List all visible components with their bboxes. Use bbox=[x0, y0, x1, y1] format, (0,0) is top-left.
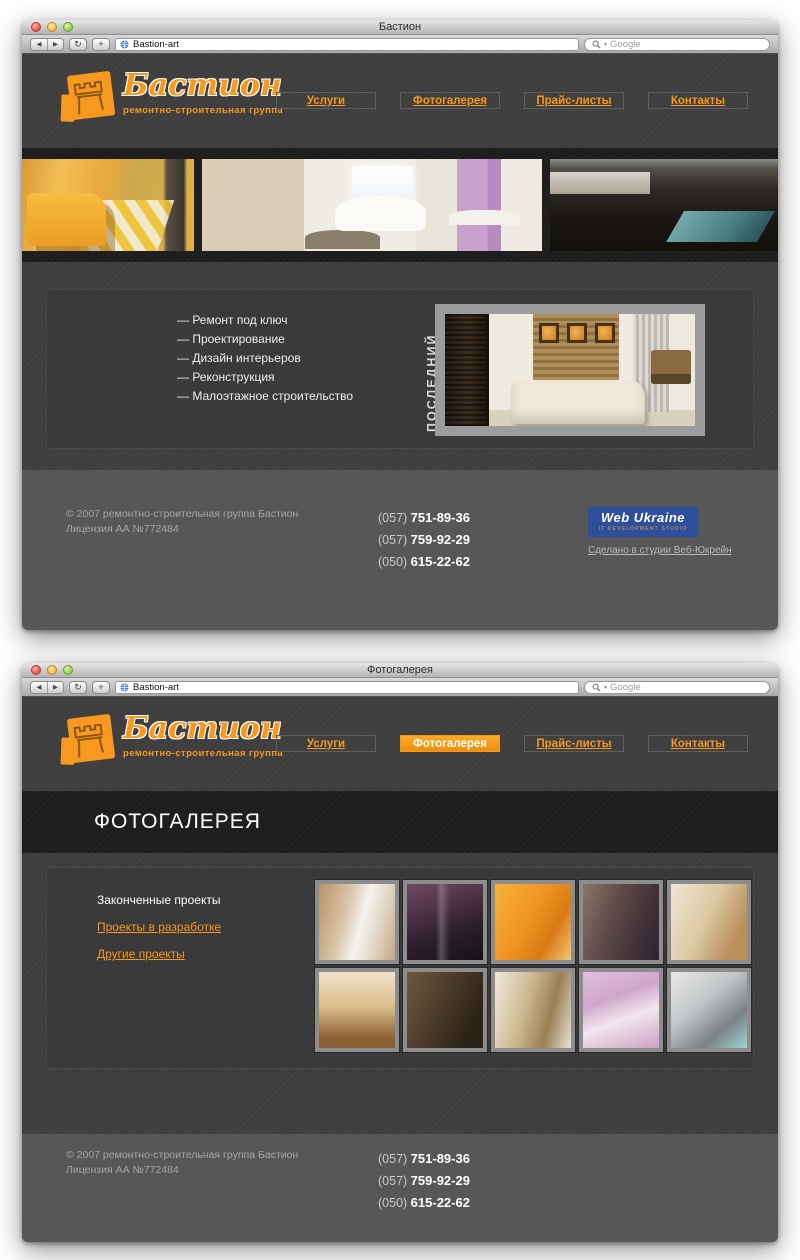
thumbnail-grid bbox=[315, 880, 751, 1052]
address-url: Bastion-art bbox=[133, 39, 179, 50]
photo-strip bbox=[22, 148, 778, 262]
nav-photogallery[interactable]: Фотогалерея bbox=[400, 92, 500, 109]
address-bar[interactable]: Bastion-art bbox=[115, 38, 579, 51]
web-ukraine-logo[interactable]: Web Ukraine IT DEVELOPMENT STUDIO bbox=[588, 507, 698, 537]
main-nav: Услуги Фотогалерея Прайс-листы Контакты bbox=[276, 92, 748, 109]
window-title: Фотогалерея bbox=[22, 663, 778, 678]
history-nav-group: ◀ ▶ bbox=[30, 681, 64, 694]
logo-tagline: ремонтно-строительная группа bbox=[123, 105, 283, 116]
window-titlebar[interactable]: Бастион bbox=[22, 20, 778, 35]
license-text: Лицензия АА №772484 bbox=[66, 1163, 378, 1178]
services-list: — Ремонт под ключ — Проектирование — Диз… bbox=[177, 314, 353, 409]
fortress-logo-icon bbox=[58, 712, 116, 770]
footer-copyright: © 2007 ремонтно-строительная группа Баст… bbox=[66, 1148, 378, 1242]
phone-number: (050) 615-22-62 bbox=[378, 1192, 550, 1214]
phone-number: (050) 615-22-62 bbox=[378, 551, 550, 573]
search-menu-chevron-icon: ▾ bbox=[604, 684, 607, 691]
interior-photo bbox=[202, 159, 542, 251]
browser-toolbar: ◀ ▶ ↻ + Bastion-art ▾ Google bbox=[22, 678, 778, 697]
phone-list: (057) 751-89-36 (057) 759-92-29 (050) 61… bbox=[378, 1148, 550, 1242]
gallery-thumb[interactable] bbox=[315, 968, 399, 1052]
home-page: Бастион ремонтно-строительная группа Усл… bbox=[22, 54, 778, 630]
site-footer: © 2007 ремонтно-строительная группа Баст… bbox=[22, 470, 778, 630]
service-item: — Проектирование bbox=[177, 333, 353, 345]
copyright-text: © 2007 ремонтно-строительная группа Баст… bbox=[66, 507, 378, 522]
page-title: ФОТОГАЛЕРЕЯ bbox=[94, 810, 261, 834]
logo[interactable]: Бастион ремонтно-строительная группа bbox=[58, 712, 283, 770]
gallery-panel: Законченные проекты Проекты в разработке… bbox=[46, 867, 754, 1069]
search-magnifier-icon bbox=[592, 683, 601, 692]
phone-number: (057) 759-92-29 bbox=[378, 529, 550, 551]
photo-art-frames-detail bbox=[539, 323, 615, 343]
nav-pricelists[interactable]: Прайс-листы bbox=[524, 735, 624, 752]
gallery-section-current[interactable]: Законченные проекты bbox=[97, 893, 221, 907]
search-placeholder: Google bbox=[610, 682, 641, 693]
history-nav-group: ◀ ▶ bbox=[30, 38, 64, 51]
studio-credit-link[interactable]: Сделано в студии Веб-Юкрейн bbox=[588, 545, 732, 556]
gallery-thumb[interactable] bbox=[403, 968, 487, 1052]
forward-button[interactable]: ▶ bbox=[47, 39, 63, 50]
phone-number: (057) 751-89-36 bbox=[378, 1148, 550, 1170]
gallery-thumb[interactable] bbox=[579, 968, 663, 1052]
gallery-thumb[interactable] bbox=[491, 968, 575, 1052]
logo-tagline: ремонтно-строительная группа bbox=[123, 748, 283, 759]
search-menu-chevron-icon: ▾ bbox=[604, 41, 607, 48]
gallery-thumb[interactable] bbox=[667, 968, 751, 1052]
nav-contacts[interactable]: Контакты bbox=[648, 92, 748, 109]
nav-services[interactable]: Услуги bbox=[276, 92, 376, 109]
logo-text: Бастион bbox=[123, 69, 283, 102]
globe-favicon-icon bbox=[120, 40, 129, 49]
globe-favicon-icon bbox=[120, 683, 129, 692]
service-item: — Малоэтажное строительство bbox=[177, 390, 353, 402]
gallery-thumb[interactable] bbox=[579, 880, 663, 964]
license-text: Лицензия АА №772484 bbox=[66, 522, 378, 537]
back-button[interactable]: ◀ bbox=[31, 682, 47, 693]
address-bar[interactable]: Bastion-art bbox=[115, 681, 579, 694]
main-nav: Услуги Фотогалерея Прайс-листы Контакты bbox=[276, 735, 748, 752]
footer-copyright: © 2007 ремонтно-строительная группа Баст… bbox=[66, 507, 378, 630]
site-footer: © 2007 ремонтно-строительная группа Баст… bbox=[22, 1134, 778, 1242]
gallery-section-link[interactable]: Другие проекты bbox=[97, 947, 221, 961]
gallery-thumb[interactable] bbox=[403, 880, 487, 964]
add-bookmark-button[interactable]: + bbox=[92, 681, 110, 694]
nav-photogallery-active[interactable]: Фотогалерея bbox=[400, 735, 500, 752]
services-panel: — Ремонт под ключ — Проектирование — Диз… bbox=[46, 289, 754, 449]
service-item: — Реконструкция bbox=[177, 371, 353, 383]
service-item: — Ремонт под ключ bbox=[177, 314, 353, 326]
phone-number: (057) 759-92-29 bbox=[378, 1170, 550, 1192]
gallery-section-nav: Законченные проекты Проекты в разработке… bbox=[97, 893, 221, 974]
site-header: Бастион ремонтно-строительная группа Усл… bbox=[22, 697, 778, 791]
nav-services[interactable]: Услуги bbox=[276, 735, 376, 752]
browser-window-home: Бастион ◀ ▶ ↻ + Bastion-art ▾ Google bbox=[22, 20, 778, 630]
logo-text: Бастион bbox=[123, 712, 283, 745]
search-magnifier-icon bbox=[592, 40, 601, 49]
phone-list: (057) 751-89-36 (057) 759-92-29 (050) 61… bbox=[378, 507, 550, 630]
page-title-band: ФОТОГАЛЕРЕЯ bbox=[22, 791, 778, 853]
interior-photo bbox=[22, 159, 194, 251]
add-bookmark-button[interactable]: + bbox=[92, 38, 110, 51]
gallery-section-link[interactable]: Проекты в разработке bbox=[97, 920, 221, 934]
window-title: Бастион bbox=[22, 20, 778, 35]
logo[interactable]: Бастион ремонтно-строительная группа bbox=[58, 69, 283, 127]
gallery-page: Бастион ремонтно-строительная группа Усл… bbox=[22, 697, 778, 1242]
back-button[interactable]: ◀ bbox=[31, 39, 47, 50]
main-content: — Ремонт под ключ — Проектирование — Диз… bbox=[22, 262, 778, 470]
forward-button[interactable]: ▶ bbox=[47, 682, 63, 693]
gallery-thumb[interactable] bbox=[315, 880, 399, 964]
browser-window-gallery: Фотогалерея ◀ ▶ ↻ + Bastion-art ▾ Google bbox=[22, 663, 778, 1242]
reload-button[interactable]: ↻ bbox=[69, 38, 87, 51]
copyright-text: © 2007 ремонтно-строительная группа Баст… bbox=[66, 1148, 378, 1163]
latest-project-photo[interactable] bbox=[435, 304, 705, 436]
reload-button[interactable]: ↻ bbox=[69, 681, 87, 694]
search-placeholder: Google bbox=[610, 39, 641, 50]
main-content: Законченные проекты Проекты в разработке… bbox=[22, 853, 778, 1134]
browser-toolbar: ◀ ▶ ↻ + Bastion-art ▾ Google bbox=[22, 35, 778, 54]
gallery-thumb[interactable] bbox=[491, 880, 575, 964]
nav-pricelists[interactable]: Прайс-листы bbox=[524, 92, 624, 109]
window-titlebar[interactable]: Фотогалерея bbox=[22, 663, 778, 678]
photo-sofa-detail bbox=[511, 380, 645, 424]
nav-contacts[interactable]: Контакты bbox=[648, 735, 748, 752]
phone-number: (057) 751-89-36 bbox=[378, 507, 550, 529]
site-header: Бастион ремонтно-строительная группа Усл… bbox=[22, 54, 778, 148]
gallery-thumb[interactable] bbox=[667, 880, 751, 964]
search-field[interactable]: ▾ Google bbox=[584, 38, 770, 51]
photo-door-detail bbox=[445, 314, 489, 426]
studio-block: Web Ukraine IT DEVELOPMENT STUDIO Сделан… bbox=[588, 507, 732, 630]
address-url: Bastion-art bbox=[133, 682, 179, 693]
interior-photo bbox=[550, 159, 778, 251]
fortress-logo-icon bbox=[58, 69, 116, 127]
search-field[interactable]: ▾ Google bbox=[584, 681, 770, 694]
service-item: — Дизайн интерьеров bbox=[177, 352, 353, 364]
